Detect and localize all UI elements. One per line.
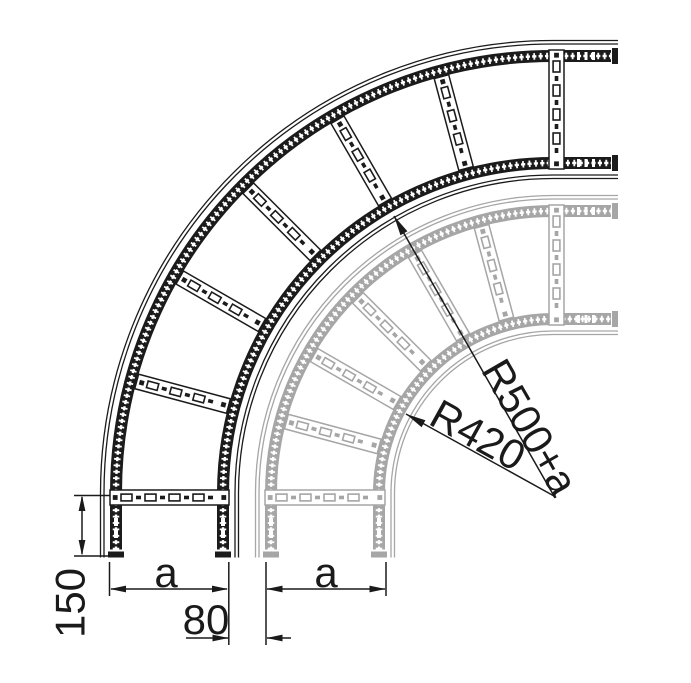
rail-slot xyxy=(114,530,118,538)
rung-slot xyxy=(121,494,132,501)
rung-end-mark xyxy=(268,495,273,500)
rung-group xyxy=(176,271,266,331)
rung xyxy=(434,75,473,171)
rung-group xyxy=(353,293,431,371)
rail-foot xyxy=(612,311,618,327)
dim-a1-arrow-right xyxy=(212,586,228,593)
rung-slot xyxy=(553,85,560,96)
rung-end-mark xyxy=(377,495,382,500)
rung-end-mark xyxy=(554,317,559,322)
rail-foot xyxy=(371,552,387,558)
rung-group xyxy=(474,224,513,321)
rung-dash xyxy=(160,496,165,500)
rail-slot xyxy=(585,207,588,215)
rail-foot xyxy=(612,203,618,219)
rung-slot xyxy=(553,240,560,251)
dim-a1-label: a xyxy=(154,549,178,596)
rung-dash xyxy=(555,148,559,153)
rung-dash xyxy=(315,496,320,500)
rail-foot xyxy=(108,552,124,558)
dim-150-label: 150 xyxy=(47,568,94,638)
dim-a1-arrow-left xyxy=(110,586,126,593)
rail-foot xyxy=(612,155,618,171)
rung xyxy=(353,293,431,371)
rung-slot xyxy=(276,494,287,501)
rail-slot xyxy=(221,530,225,538)
rung-end-mark xyxy=(221,495,226,500)
rung-dash xyxy=(555,255,559,260)
rung-dash xyxy=(555,279,559,284)
rung-group xyxy=(243,183,321,261)
rail-slot xyxy=(592,52,595,60)
rail-slot xyxy=(377,518,381,526)
dim-80-arrow-right xyxy=(267,635,283,642)
rail-slot xyxy=(269,518,273,526)
rung-slot xyxy=(553,133,560,144)
rung-slot xyxy=(145,494,156,501)
rung-group xyxy=(284,414,381,453)
rung-group xyxy=(331,116,391,206)
rung xyxy=(135,374,231,413)
rail-slot xyxy=(577,207,580,215)
rung-dash xyxy=(136,496,141,500)
rung-dash xyxy=(208,496,213,500)
rung-dash xyxy=(555,303,559,308)
rung-dash xyxy=(339,496,344,500)
rung xyxy=(284,414,381,453)
rung-dash xyxy=(363,496,368,500)
rung-end-mark xyxy=(554,53,559,58)
rung xyxy=(176,271,266,331)
drawing-page: 150 a a 80 R500+a R420 xyxy=(0,0,691,683)
rung-slot xyxy=(553,109,560,120)
rung-slot xyxy=(553,264,560,275)
rung-dash xyxy=(555,231,559,236)
dim-a2-arrow-left xyxy=(267,586,283,593)
rail-slot xyxy=(221,518,225,526)
rung-slot xyxy=(553,288,560,299)
rung xyxy=(331,116,391,206)
dim-a2-arrow-right xyxy=(370,586,386,593)
rail-slot xyxy=(269,530,273,538)
rung-end-mark xyxy=(113,495,118,500)
rail-slot xyxy=(377,530,381,538)
rail-slot xyxy=(592,159,595,167)
rail-foot xyxy=(263,552,279,558)
rung-slot xyxy=(300,494,311,501)
rail-slot xyxy=(114,518,118,526)
rung xyxy=(243,183,321,261)
rung-slot xyxy=(193,494,204,501)
rail-slot xyxy=(585,315,588,323)
dim-80-label: 80 xyxy=(183,596,230,643)
leader-r420-arrow xyxy=(406,414,425,427)
rail-slot xyxy=(585,52,588,60)
rung-group xyxy=(135,374,231,413)
rung-slot xyxy=(324,494,335,501)
rung-slot xyxy=(553,61,560,72)
rail-foot xyxy=(612,48,618,64)
rung-end-mark xyxy=(554,161,559,166)
rung-group xyxy=(434,75,473,171)
rung-dash xyxy=(555,76,559,81)
rung-end-mark xyxy=(554,208,559,213)
rail-slot xyxy=(577,315,580,323)
dim-a2-label: a xyxy=(314,549,338,596)
technical-drawing: 150 a a 80 R500+a R420 xyxy=(0,0,691,683)
rail-slot xyxy=(577,159,580,167)
rung-group xyxy=(310,349,401,410)
rail-slot xyxy=(577,52,580,60)
rail-foot xyxy=(215,552,231,558)
rail-slot xyxy=(585,159,588,167)
rail-slot xyxy=(592,315,595,323)
rung xyxy=(310,349,401,410)
dim-150-arrow-up xyxy=(79,496,86,512)
rung-slot xyxy=(169,494,180,501)
rung-dash xyxy=(555,100,559,105)
rail-slot xyxy=(592,207,595,215)
rung-dash xyxy=(555,124,559,129)
rung-slot xyxy=(348,494,359,501)
dim-150-arrow-down xyxy=(79,540,86,556)
rung-slot xyxy=(553,216,560,227)
leader-r500-arrow xyxy=(394,216,407,235)
rung xyxy=(474,224,513,321)
rung-dash xyxy=(184,496,189,500)
rung-dash xyxy=(291,496,296,500)
